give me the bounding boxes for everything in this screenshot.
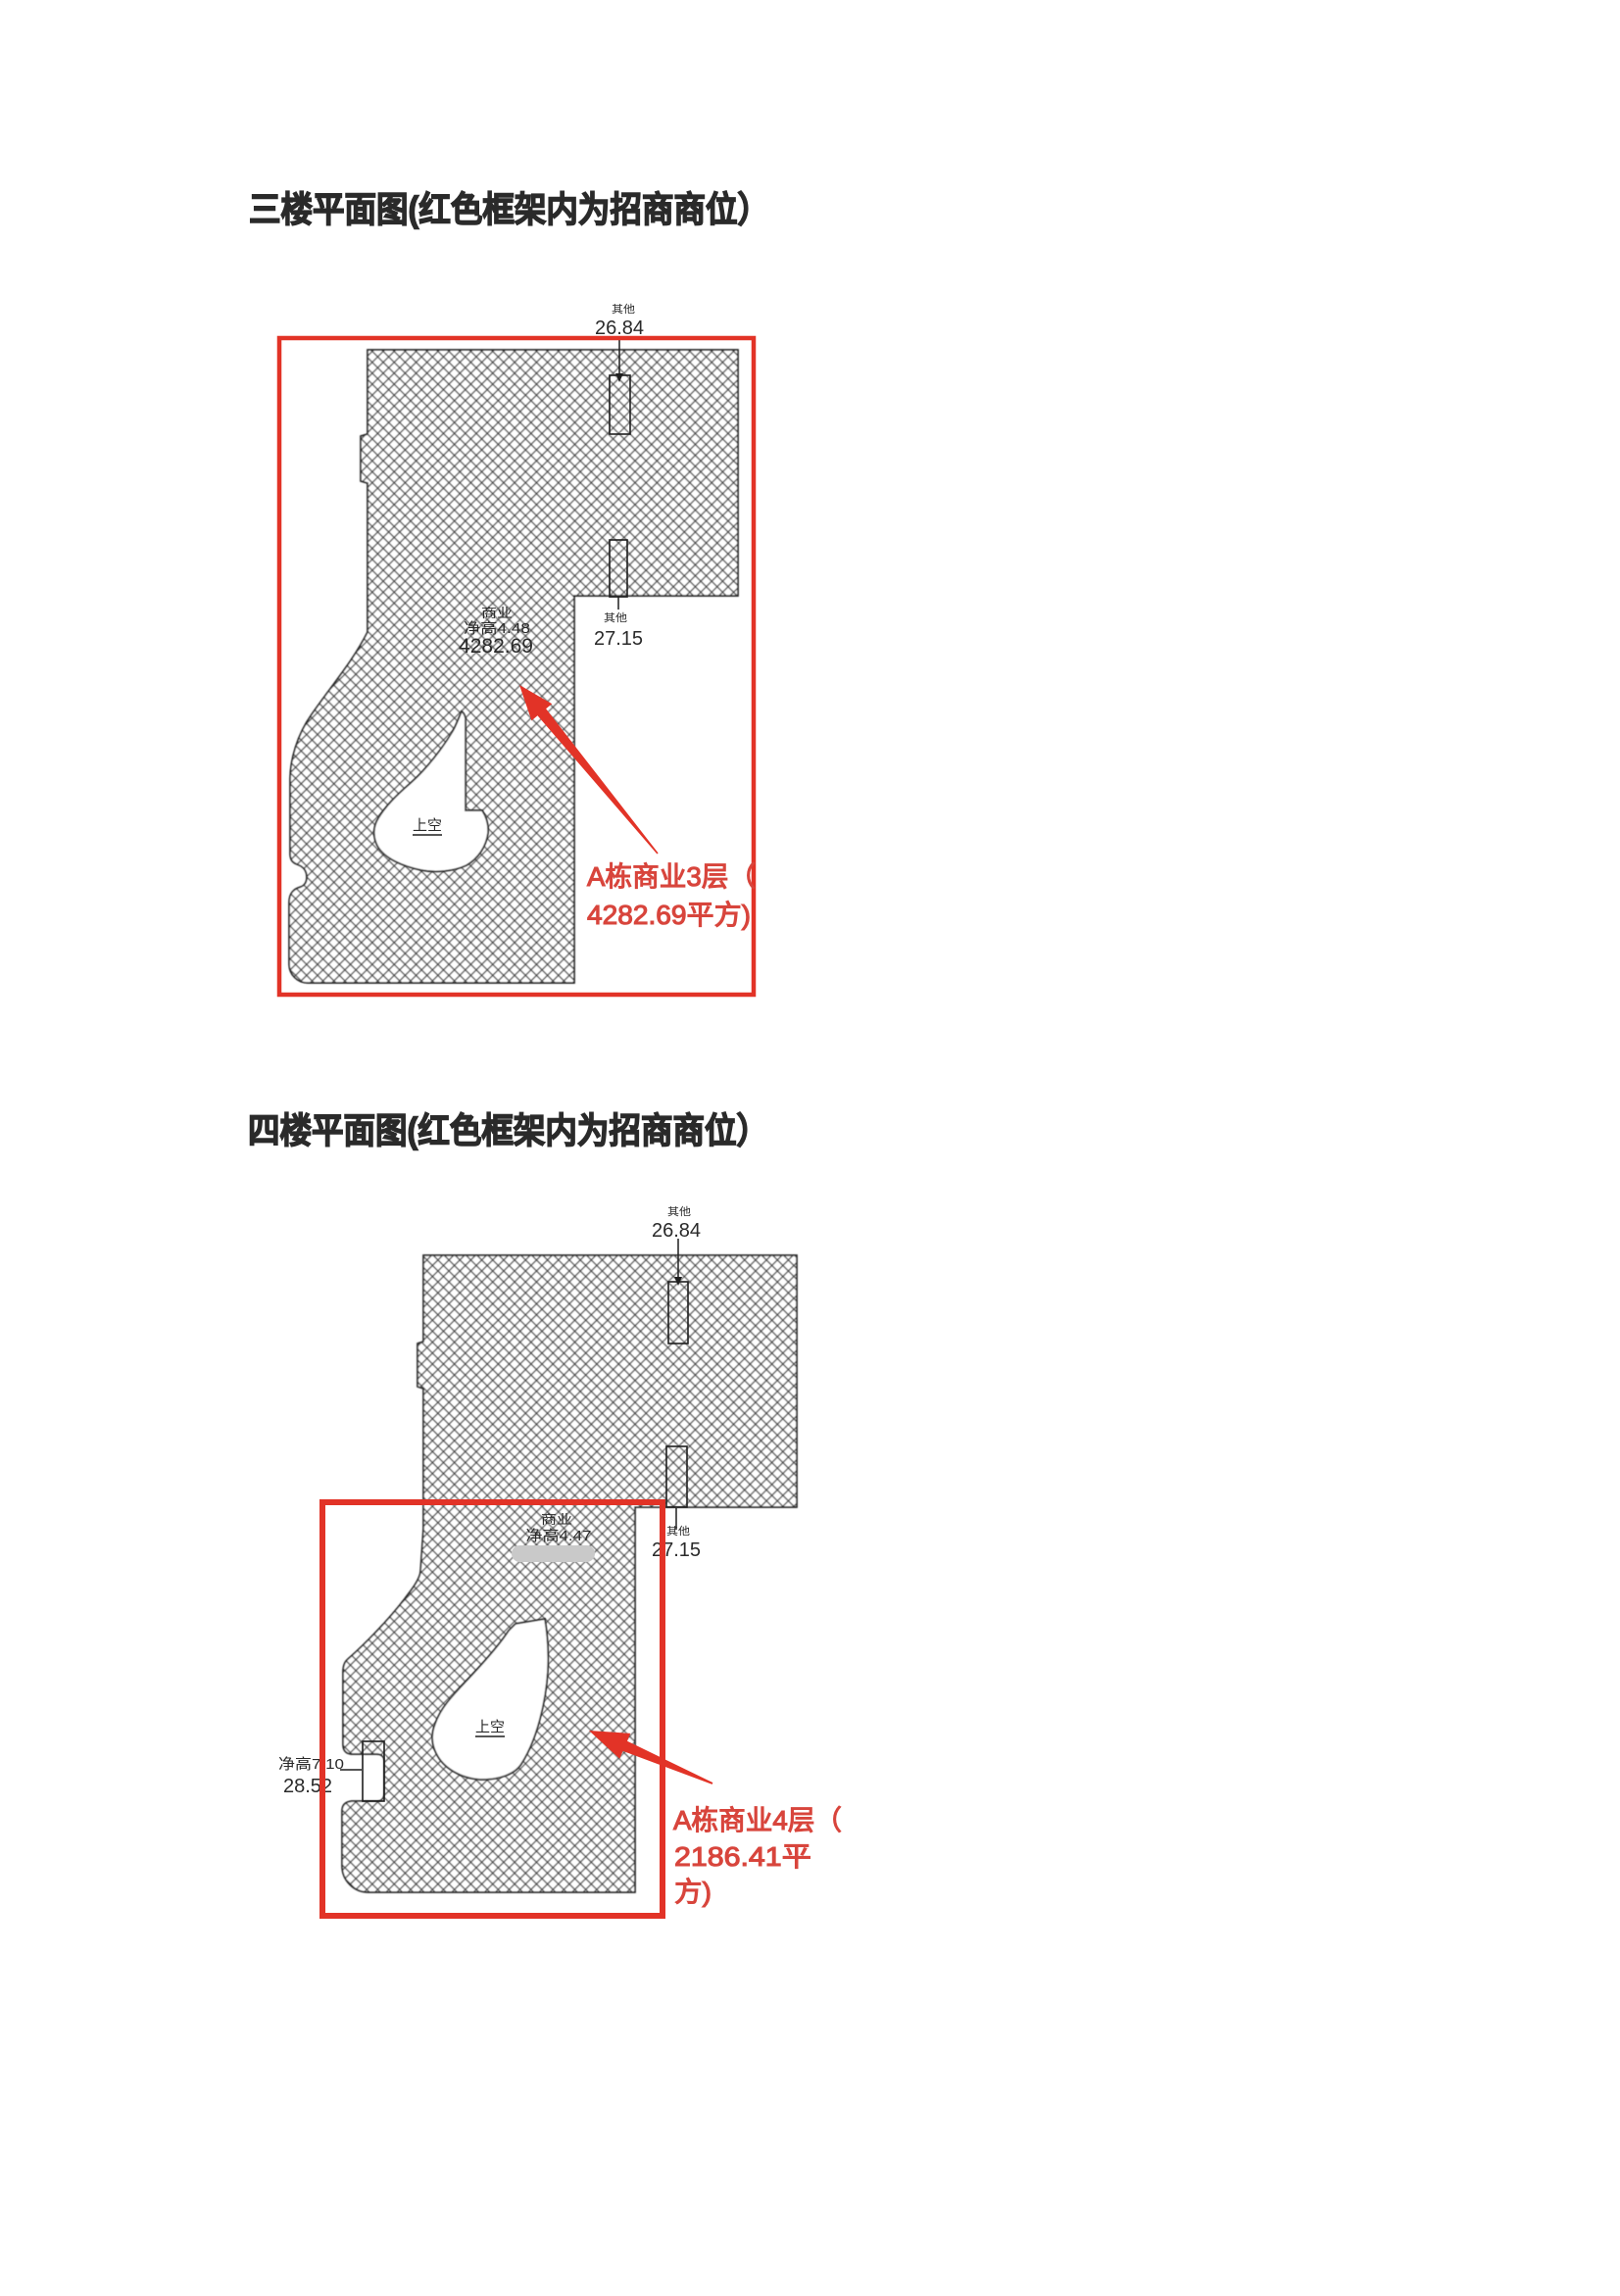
svg-text:净高4.47: 净高4.47 <box>526 1528 592 1544</box>
svg-text:其他: 其他 <box>612 303 635 316</box>
svg-text:三楼平面图(红色框架内为招商商位）: 三楼平面图(红色框架内为招商商位） <box>249 189 769 229</box>
svg-text:4282.69: 4282.69 <box>459 635 533 658</box>
svg-text:A栋商业3层（: A栋商业3层（ <box>587 861 756 892</box>
svg-text:其他: 其他 <box>666 1525 690 1538</box>
svg-text:2186.41平: 2186.41平 <box>674 1841 811 1872</box>
svg-text:净高7.10: 净高7.10 <box>278 1756 344 1773</box>
svg-text:四楼平面图(红色框架内为招商商位）: 四楼平面图(红色框架内为招商商位） <box>248 1110 768 1150</box>
svg-text:商业: 商业 <box>541 1512 572 1527</box>
svg-text:27.15: 27.15 <box>652 1539 701 1561</box>
svg-text:26.84: 26.84 <box>652 1220 701 1242</box>
svg-text:上空: 上空 <box>475 1719 505 1735</box>
svg-text:27.15: 27.15 <box>594 628 643 650</box>
svg-text:其他: 其他 <box>667 1205 691 1218</box>
svg-text:A栋商业4层（: A栋商业4层（ <box>673 1805 842 1835</box>
svg-text:其他: 其他 <box>604 611 627 624</box>
svg-text:26.84: 26.84 <box>595 318 644 339</box>
svg-text:商业: 商业 <box>481 606 513 620</box>
svg-text:4282.69平方): 4282.69平方) <box>587 900 751 930</box>
svg-text:上空: 上空 <box>413 817 442 834</box>
svg-text:方): 方) <box>674 1877 712 1907</box>
